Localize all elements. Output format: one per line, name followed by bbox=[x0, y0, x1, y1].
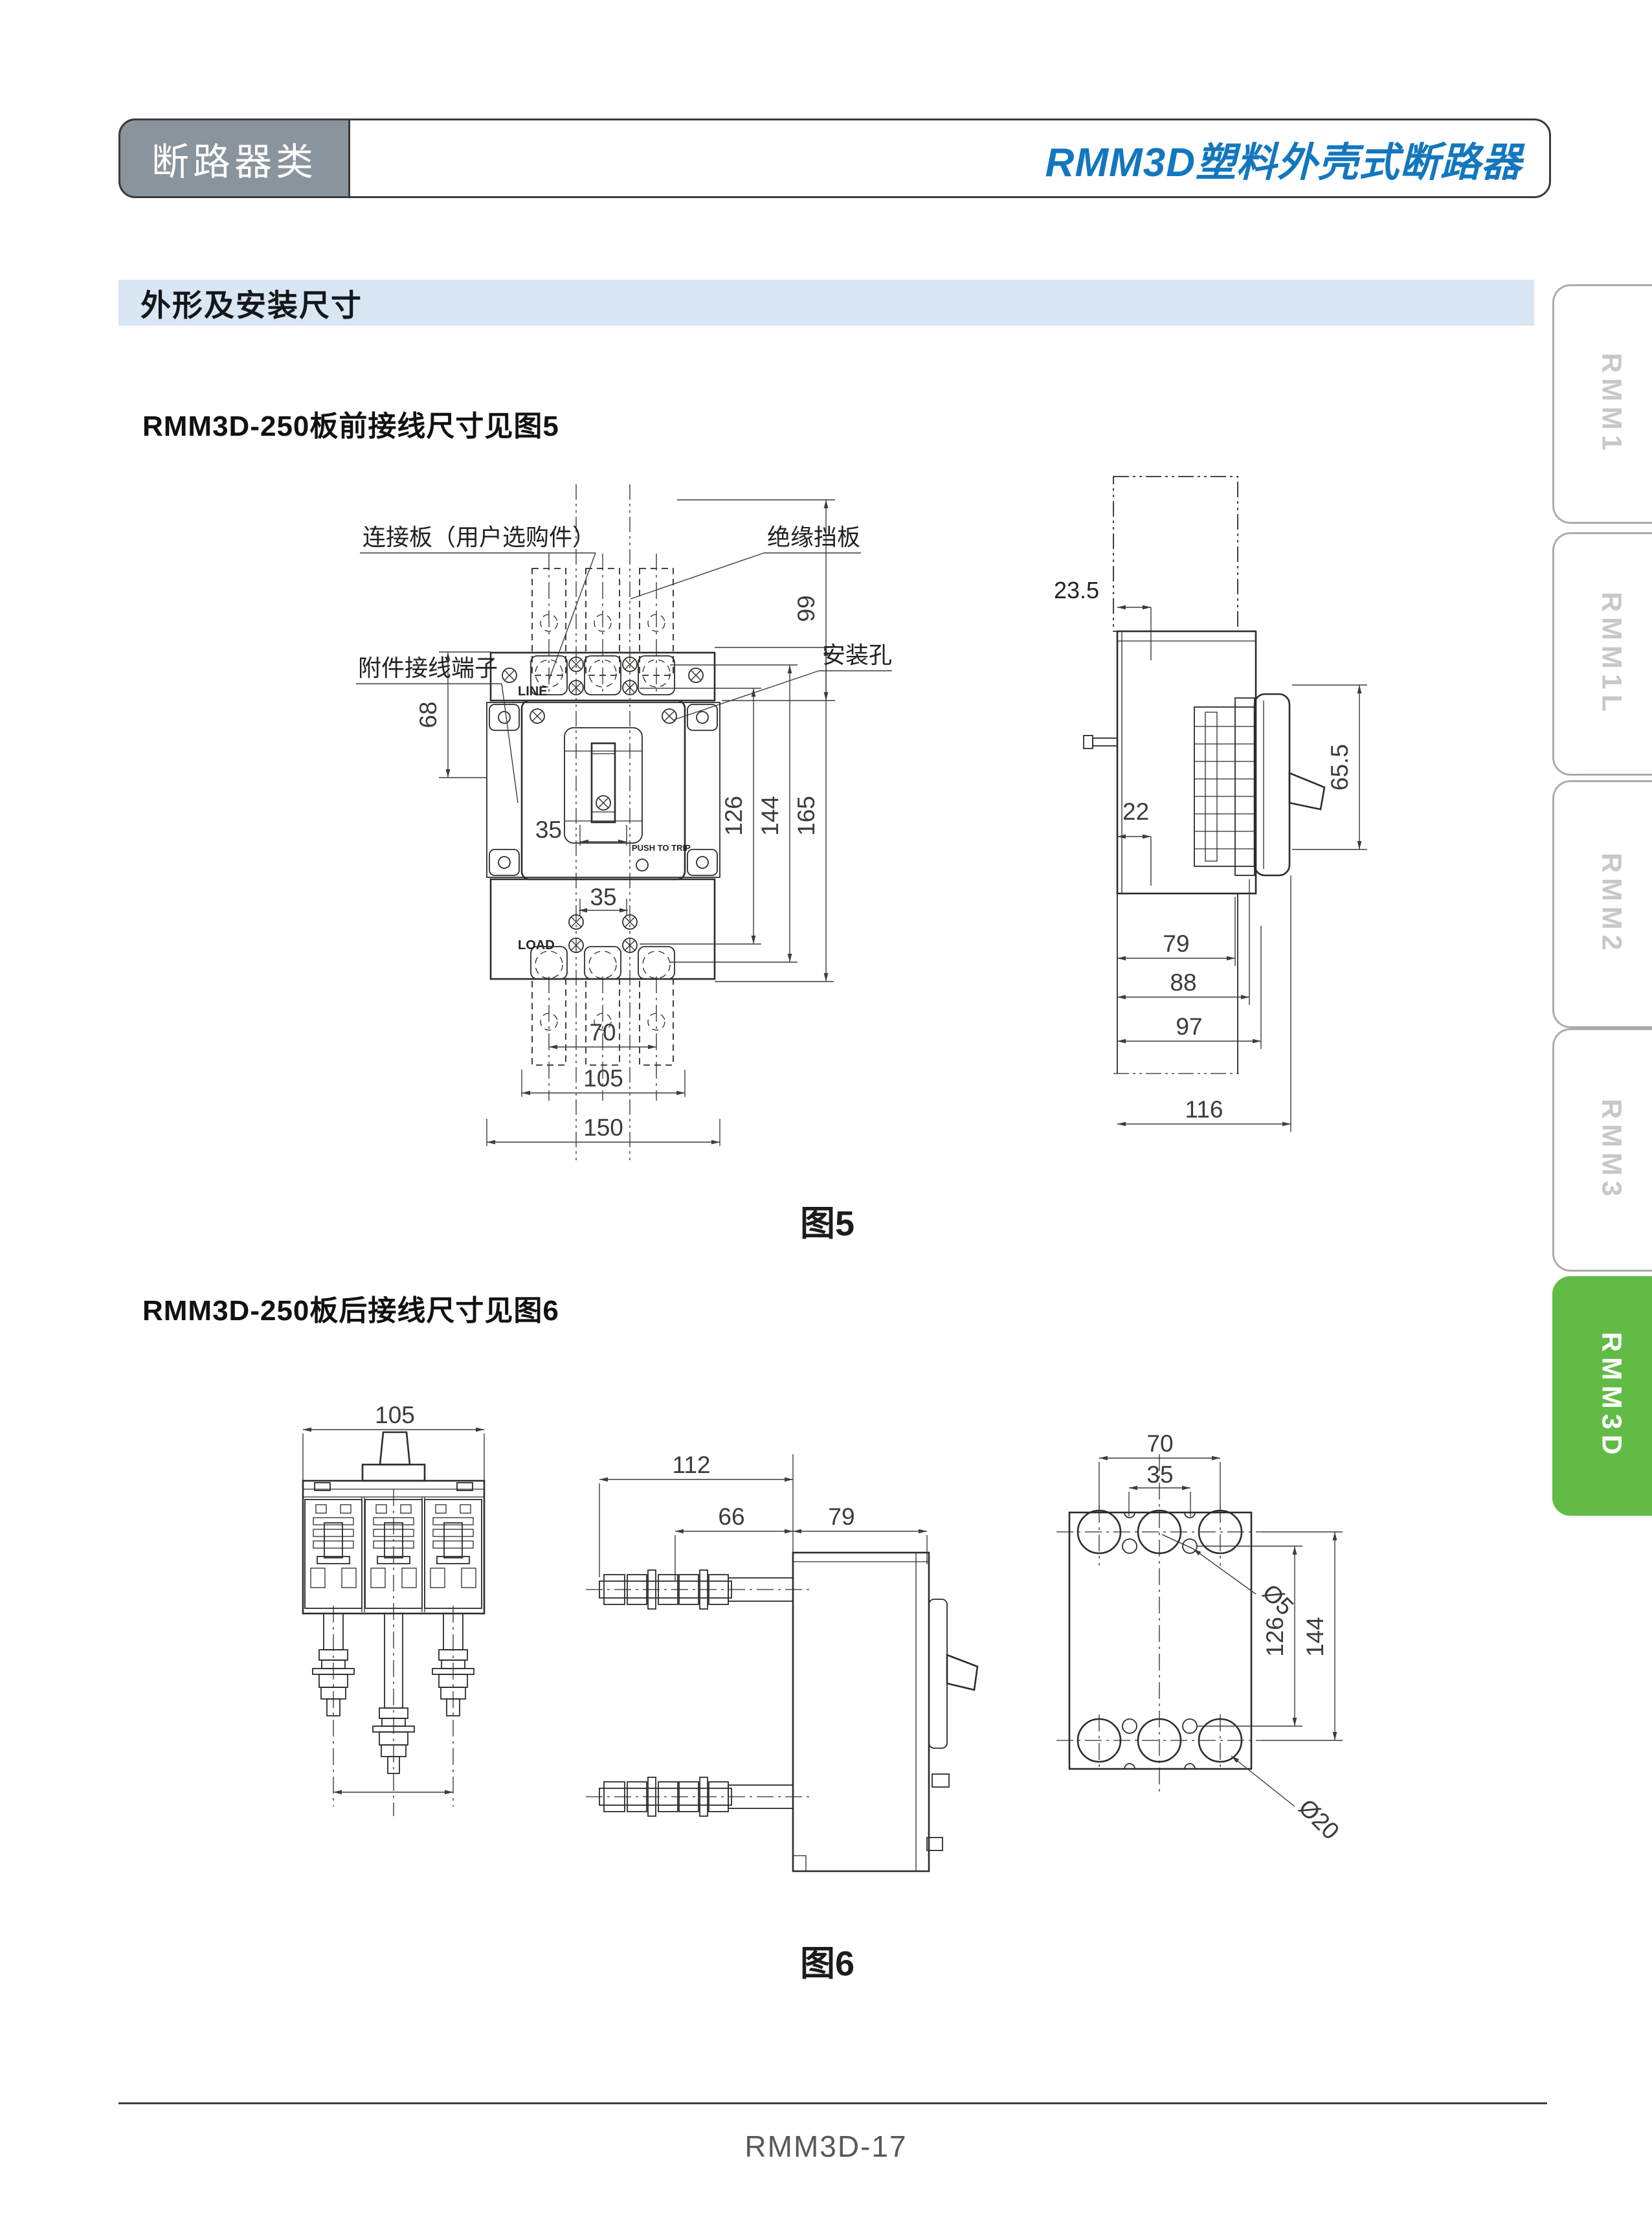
rear-pole-1 bbox=[305, 1500, 362, 1608]
dim-79: 79 bbox=[1163, 930, 1189, 957]
tab-label-rmm2: RMM2 bbox=[1596, 853, 1627, 956]
dim-22: 22 bbox=[1122, 798, 1149, 825]
fig6-heading: RMM3D-250板后接线尺寸见图6 bbox=[142, 1287, 559, 1329]
sidebar-tab-rmm3d[interactable]: RMM3D bbox=[1552, 1276, 1652, 1516]
rear-pole-3 bbox=[425, 1500, 482, 1608]
fig6-side-view: 112 66 79 bbox=[586, 1452, 977, 1871]
dim-dia5: Ø5 bbox=[1257, 1579, 1299, 1621]
page-title: RMM3D塑料外壳式断路器 bbox=[1045, 120, 1522, 196]
dim-97: 97 bbox=[1176, 1013, 1202, 1040]
fig5-caption: 图5 bbox=[756, 1195, 899, 1246]
fig5-side-view: 23.5 bbox=[1054, 477, 1367, 1132]
dim-116: 116 bbox=[1185, 1096, 1223, 1123]
dim-144: 144 bbox=[757, 796, 783, 836]
sidebar-tab-rmm3[interactable]: RMM3 bbox=[1552, 1028, 1652, 1272]
dim-112: 112 bbox=[673, 1452, 711, 1478]
dim-165: 165 bbox=[793, 796, 820, 836]
fig5-heading: RMM3D-250板前接线尺寸见图5 bbox=[142, 403, 559, 444]
section-title: 外形及安装尺寸 bbox=[140, 280, 363, 325]
category-badge: 断路器类 bbox=[118, 118, 350, 198]
push-to-trip-mark: PUSH TO TRIP bbox=[632, 843, 691, 853]
dim-35-mount: 35 bbox=[1146, 1461, 1173, 1488]
dim-144-mount: 144 bbox=[1302, 1617, 1328, 1657]
dim-dia20: Ø20 bbox=[1293, 1794, 1344, 1845]
fig6-mounting-view: 70 35 Ø5 bbox=[1056, 1430, 1345, 1845]
callout-accessory-terminal: 附件接线端子 bbox=[358, 655, 498, 681]
dim-70-mount: 70 bbox=[1146, 1430, 1173, 1457]
dim-150: 150 bbox=[583, 1114, 623, 1141]
dim-105: 105 bbox=[583, 1065, 623, 1092]
dim-88: 88 bbox=[1170, 969, 1196, 996]
tab-label-rmm3: RMM3 bbox=[1596, 1099, 1627, 1202]
dim-35-load: 35 bbox=[590, 884, 616, 910]
dim-23-5: 23.5 bbox=[1054, 577, 1099, 603]
dim-99: 99 bbox=[793, 595, 820, 622]
tab-label-rmm1l: RMM1L bbox=[1596, 592, 1627, 717]
category-label: 断路器类 bbox=[151, 131, 317, 186]
side-stud-top bbox=[586, 1570, 809, 1609]
fig6-caption: 图6 bbox=[756, 1935, 899, 1986]
dim-66: 66 bbox=[718, 1503, 744, 1530]
tab-label-rmm3d: RMM3D bbox=[1596, 1332, 1627, 1460]
dim-126-mount: 126 bbox=[1262, 1617, 1288, 1657]
page-background: 断路器类 RMM3D塑料外壳式断路器 外形及安装尺寸 RMM3D-250板前接线… bbox=[0, 0, 1652, 2226]
callout-connect-plate: 连接板（用户选购件） bbox=[363, 524, 596, 550]
dim-35-handle: 35 bbox=[535, 816, 562, 843]
dim-79-side: 79 bbox=[828, 1503, 854, 1530]
dim-70: 70 bbox=[589, 1019, 616, 1046]
footer-divider bbox=[118, 2102, 1547, 2104]
page-number: RMM3D-17 bbox=[0, 2129, 1652, 2164]
dim-126: 126 bbox=[720, 796, 747, 836]
fig6-drawing: 105 bbox=[285, 1399, 1359, 1878]
callout-mount-hole: 安装孔 bbox=[822, 642, 892, 668]
side-stud-bottom bbox=[586, 1777, 809, 1816]
sidebar-tab-rmm2[interactable]: RMM2 bbox=[1552, 780, 1652, 1028]
line-mark: LINE bbox=[518, 684, 548, 699]
sidebar-tab-rmm1[interactable]: RMM1 bbox=[1552, 284, 1652, 524]
fig6-rear-view: 105 bbox=[303, 1402, 484, 1816]
callout-insulate-baffle: 绝缘挡板 bbox=[767, 524, 860, 550]
header-bar: 断路器类 RMM3D塑料外壳式断路器 bbox=[118, 118, 1551, 198]
sidebar-tab-rmm1l[interactable]: RMM1L bbox=[1552, 532, 1652, 776]
fig5-front-view: LINE 35 PUSH TO TRIP bbox=[356, 484, 892, 1162]
dim-105-rear: 105 bbox=[375, 1402, 415, 1428]
tab-label-rmm1: RMM1 bbox=[1596, 353, 1627, 456]
section-header: 外形及安装尺寸 bbox=[118, 280, 1534, 326]
dim-68: 68 bbox=[415, 701, 441, 728]
load-mark: LOAD bbox=[518, 938, 555, 952]
dim-65-5: 65.5 bbox=[1326, 744, 1353, 791]
fig5-drawing: LINE 35 PUSH TO TRIP bbox=[343, 473, 1379, 1243]
